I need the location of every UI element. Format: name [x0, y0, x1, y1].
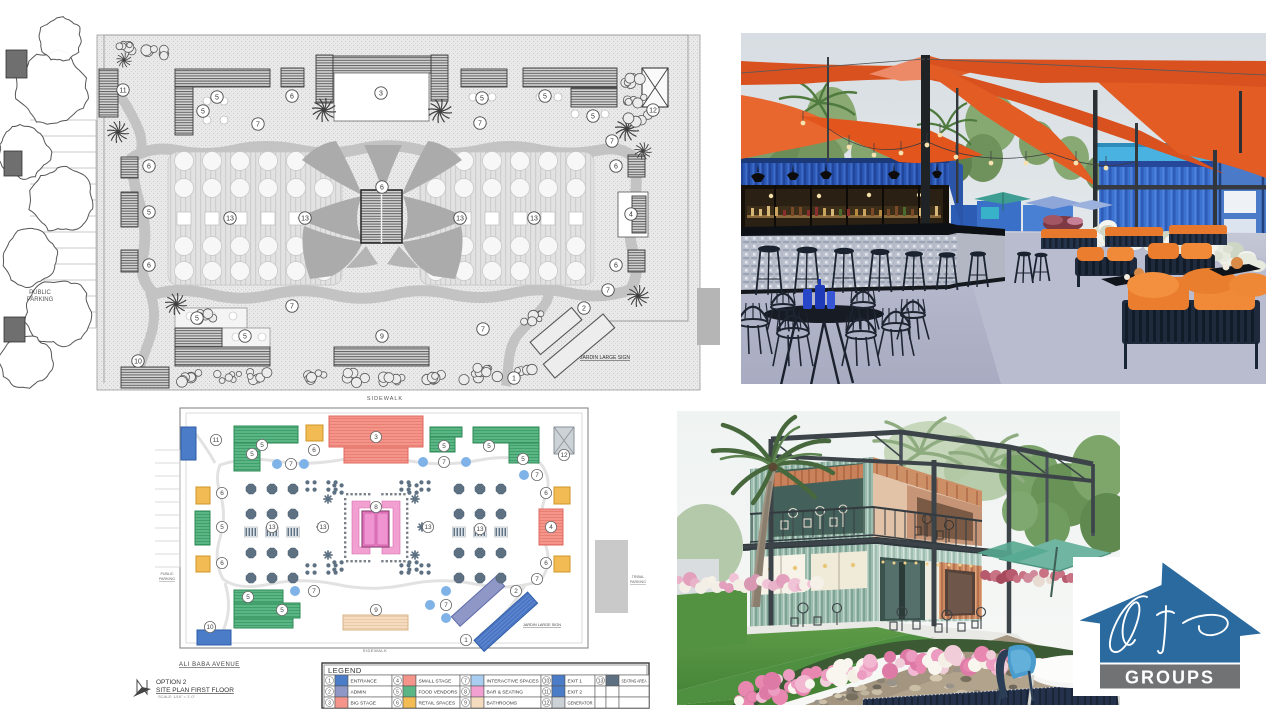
svg-text:SIDEWALK: SIDEWALK [363, 648, 388, 653]
svg-text:7: 7 [481, 326, 485, 333]
svg-text:9: 9 [374, 607, 378, 614]
svg-text:5: 5 [396, 690, 399, 696]
svg-text:SITE PLAN FIRST FLOOR: SITE PLAN FIRST FLOOR [156, 687, 234, 694]
svg-text:PARKING: PARKING [159, 577, 175, 581]
svg-text:5: 5 [480, 95, 484, 102]
svg-text:5: 5 [280, 607, 284, 614]
svg-text:13: 13 [226, 215, 234, 222]
svg-text:5: 5 [591, 113, 595, 120]
svg-text:7: 7 [256, 121, 260, 128]
svg-text:PARKING: PARKING [630, 580, 646, 584]
svg-text:1: 1 [512, 375, 516, 382]
svg-text:13: 13 [476, 526, 484, 533]
svg-text:10: 10 [206, 624, 214, 631]
svg-text:4: 4 [549, 524, 553, 531]
svg-text:6: 6 [544, 490, 548, 497]
svg-text:7: 7 [290, 303, 294, 310]
svg-text:2: 2 [582, 305, 586, 312]
svg-text:5: 5 [442, 443, 446, 450]
svg-text:EXIT 2: EXIT 2 [568, 690, 583, 696]
svg-text:GENERATOR: GENERATOR [568, 701, 593, 707]
svg-text:5: 5 [243, 333, 247, 340]
svg-text:3: 3 [328, 701, 331, 707]
svg-text:7: 7 [444, 602, 448, 609]
svg-text:5: 5 [215, 94, 219, 101]
svg-text:2: 2 [514, 588, 518, 595]
svg-text:7: 7 [478, 120, 482, 127]
svg-text:2: 2 [328, 690, 331, 696]
svg-text:5: 5 [250, 451, 254, 458]
svg-text:7: 7 [606, 287, 610, 294]
svg-text:10: 10 [134, 358, 142, 365]
svg-text:7: 7 [312, 588, 316, 595]
svg-text:13: 13 [424, 524, 432, 531]
svg-text:JARDIN LARGE SIGN: JARDIN LARGE SIGN [523, 623, 561, 627]
svg-text:5: 5 [260, 442, 264, 449]
svg-text:PARKING: PARKING [27, 297, 54, 303]
svg-text:BIG STAGE: BIG STAGE [351, 701, 377, 707]
svg-text:RETAIL SPACES: RETAIL SPACES [419, 701, 456, 707]
svg-text:6: 6 [147, 163, 151, 170]
svg-text:JARDIN LARGE SIGN: JARDIN LARGE SIGN [580, 355, 630, 361]
svg-text:6: 6 [312, 447, 316, 454]
svg-text:7: 7 [535, 576, 539, 583]
svg-text:6: 6 [614, 163, 618, 170]
svg-text:6: 6 [380, 184, 384, 191]
svg-text:6: 6 [290, 93, 294, 100]
svg-text:13: 13 [530, 215, 538, 222]
svg-text:ENTRANCE: ENTRANCE [351, 679, 377, 685]
svg-text:9: 9 [380, 333, 384, 340]
svg-text:6: 6 [220, 490, 224, 497]
svg-text:5: 5 [220, 524, 224, 531]
svg-text:5: 5 [201, 108, 205, 115]
svg-text:5: 5 [195, 315, 199, 322]
svg-text:13: 13 [319, 524, 327, 531]
svg-text:6: 6 [544, 560, 548, 567]
svg-text:5: 5 [487, 443, 491, 450]
svg-text:6: 6 [614, 262, 618, 269]
svg-text:5: 5 [147, 209, 151, 216]
svg-text:7: 7 [464, 679, 467, 685]
svg-text:8: 8 [464, 690, 467, 696]
svg-text:3: 3 [379, 90, 383, 97]
svg-text:13: 13 [456, 215, 464, 222]
svg-text:6: 6 [220, 560, 224, 567]
svg-text:BATHROOMS: BATHROOMS [487, 701, 518, 707]
svg-text:7: 7 [442, 459, 446, 466]
svg-text:13: 13 [301, 215, 309, 222]
svg-text:SEATING AREA: SEATING AREA [622, 679, 647, 684]
svg-text:12: 12 [544, 701, 550, 707]
svg-text:11: 11 [544, 690, 549, 696]
svg-text:7: 7 [535, 472, 539, 479]
svg-text:3: 3 [374, 434, 378, 441]
svg-text:4: 4 [629, 211, 633, 218]
svg-text:EXIT 1: EXIT 1 [568, 679, 583, 685]
svg-text:FOOD VENDORS: FOOD VENDORS [419, 690, 458, 696]
svg-text:1: 1 [328, 679, 331, 685]
svg-text:10: 10 [544, 679, 550, 685]
svg-text:BAR & SEATING: BAR & SEATING [487, 690, 524, 696]
svg-text:INTERACTIVE SPACES: INTERACTIVE SPACES [487, 679, 539, 685]
svg-text:8: 8 [374, 504, 378, 511]
svg-text:13: 13 [598, 679, 604, 685]
svg-text:13: 13 [268, 524, 276, 531]
svg-text:GROUPS: GROUPS [1125, 668, 1215, 688]
svg-text:7: 7 [610, 138, 614, 145]
svg-text:5: 5 [246, 594, 250, 601]
svg-text:LEGEND: LEGEND [328, 666, 362, 675]
svg-text:5: 5 [543, 93, 547, 100]
svg-text:PUBLIC: PUBLIC [161, 572, 174, 576]
svg-text:6: 6 [147, 262, 151, 269]
svg-text:11: 11 [119, 87, 126, 94]
svg-text:6: 6 [396, 701, 399, 707]
svg-text:OPTION 2: OPTION 2 [156, 679, 187, 686]
svg-text:4: 4 [396, 679, 399, 685]
svg-text:7: 7 [289, 461, 293, 468]
svg-text:SMALL STAGE: SMALL STAGE [419, 679, 452, 685]
svg-text:12: 12 [560, 452, 568, 459]
svg-text:11: 11 [213, 437, 220, 444]
svg-text:12: 12 [649, 107, 657, 114]
svg-text:9: 9 [464, 701, 467, 707]
svg-text:ALI BABA AVENUE: ALI BABA AVENUE [179, 662, 240, 668]
svg-text:TRIBAL: TRIBAL [632, 575, 645, 579]
svg-text:PUBLIC: PUBLIC [29, 290, 51, 296]
svg-text:1: 1 [464, 637, 468, 644]
svg-text:ADMIN: ADMIN [351, 690, 367, 696]
svg-text:SCALE: 1/16" = 1'-0": SCALE: 1/16" = 1'-0" [158, 694, 196, 699]
svg-text:SIDEWALK: SIDEWALK [367, 396, 403, 402]
svg-text:5: 5 [521, 456, 525, 463]
